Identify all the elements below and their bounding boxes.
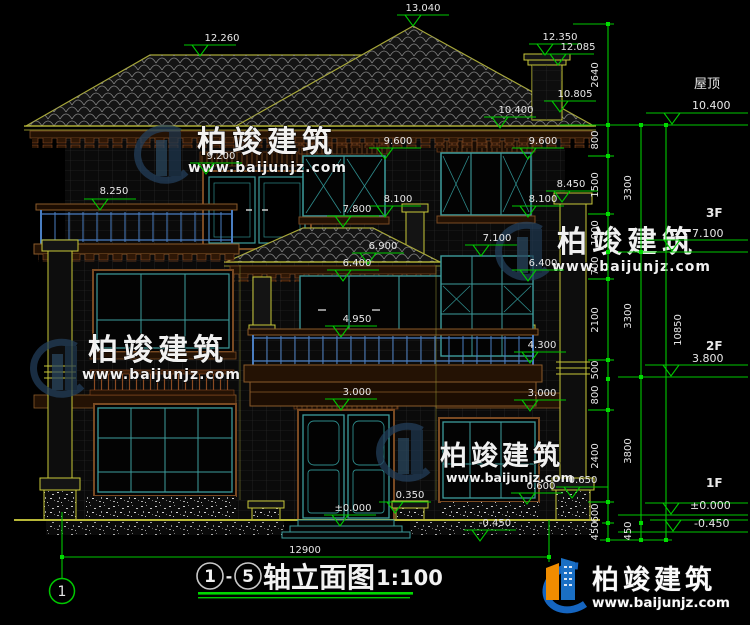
floor-value-1f: ±0.000 [690,499,731,512]
dim: 1000 [590,220,601,245]
dim: 800 [590,385,601,404]
dim: 1500 [590,172,601,197]
elev-label: 0.600 [527,481,556,492]
title-axis-separator: - [226,567,233,586]
elev-label: 0.650 [569,475,598,486]
elev-label: 0.350 [396,490,425,501]
floor-label-2f: 2F [706,339,723,353]
window-1f-left [94,404,236,496]
elevation-drawing: 柏竣建筑 www.baijunjz.com 柏竣建筑 www.baijunjz.… [0,0,750,625]
dim: 600 [590,503,601,522]
title-underline-thin [198,597,410,598]
floor-label-1f: 1F [706,476,723,490]
foundation-left [46,521,284,535]
elev-label: 8.250 [100,186,129,197]
axis-bubble-number: 1 [58,584,67,600]
watermark-url: www.baijunjz.com [82,367,241,383]
elev-label: 8.100 [384,194,413,205]
elev-label: 12.260 [205,33,240,44]
dim: 450 [623,521,634,540]
dim: 700 [590,256,601,275]
dim: 450 [590,521,601,540]
watermark-brand: 柏竣建筑 [557,225,697,260]
floor-value-2f: 3.800 [692,352,724,365]
elev-label: 7.100 [483,233,512,244]
elev-label: 8.450 [557,179,586,190]
elev-label: 4.950 [343,314,372,325]
title-scale: 1:100 [376,566,443,590]
logo-building-blue-icon [561,558,575,600]
elev-label: 10.805 [558,89,593,100]
floor-level-labels: 屋顶 10.400 3F 7.100 2F 3.800 1F ±0.000 -0… [690,77,731,530]
elev-label: 9.600 [384,136,413,147]
title-underline-thick [198,592,413,595]
floor-value-roof: 10.400 [692,99,731,112]
watermark-url: www.baijunjz.com [188,160,347,176]
elev-label: 8.100 [529,194,558,205]
floor-label-roof: 屋顶 [694,77,720,92]
logo-brand-text: 柏竣建筑 [592,564,716,596]
dim: 800 [590,130,601,149]
title-axis-end: 5 [242,567,254,587]
elev-label: 3.000 [528,388,557,399]
dim: 3300 [623,175,634,200]
dim: 3800 [623,438,634,463]
title-axis-start: 1 [204,567,216,587]
watermark-brand: 柏竣建筑 [88,333,228,368]
elev-label: 9.200 [207,151,236,162]
drawing-title: 1 - 5 轴立面图 1:100 [197,561,443,598]
elev-label: 7.800 [343,204,372,215]
watermark-brand: 柏竣建筑 [440,440,564,472]
elev-label: ±0.000 [334,503,371,514]
stone-base-left [86,496,236,520]
elev-label: 9.600 [529,136,558,147]
logo-building-orange-icon [546,563,559,600]
elev-label: 4.300 [528,340,557,351]
dim-width: 12900 [289,545,321,556]
title-name: 轴立面图 [263,561,375,594]
elev-label: -0.450 [479,518,511,529]
watermark-url: www.baijunjz.com [552,259,711,275]
floor-label-3f: 3F [706,206,723,220]
brand-logo: 柏竣建筑 www.baijunjz.com [546,558,730,611]
floor-value-below: -0.450 [694,517,729,530]
dim: 2100 [590,307,601,332]
cad-elevation-screenshot: 柏竣建筑 www.baijunjz.com 柏竣建筑 www.baijunjz.… [0,0,750,625]
elev-label: 12.085 [561,42,596,53]
dim: 2400 [590,443,601,468]
entry-steps [282,520,410,538]
elev-label: 13.040 [406,3,441,14]
floor-value-3f: 7.100 [692,227,724,240]
elev-label: 6.400 [529,258,558,269]
axis-bubble-1: 1 [50,579,75,604]
elev-label: 3.000 [343,387,372,398]
logo-url-text: www.baijunjz.com [592,595,730,611]
dim: 3300 [623,303,634,328]
dim: 500 [590,360,601,379]
elev-label: 10.400 [499,105,534,116]
elev-label: 6.900 [369,241,398,252]
dim: 2640 [590,62,601,87]
elev-label: 6.400 [343,258,372,269]
window-3f-right [437,153,535,223]
window-2f-center [300,276,448,332]
dim: 10850 [673,314,684,346]
